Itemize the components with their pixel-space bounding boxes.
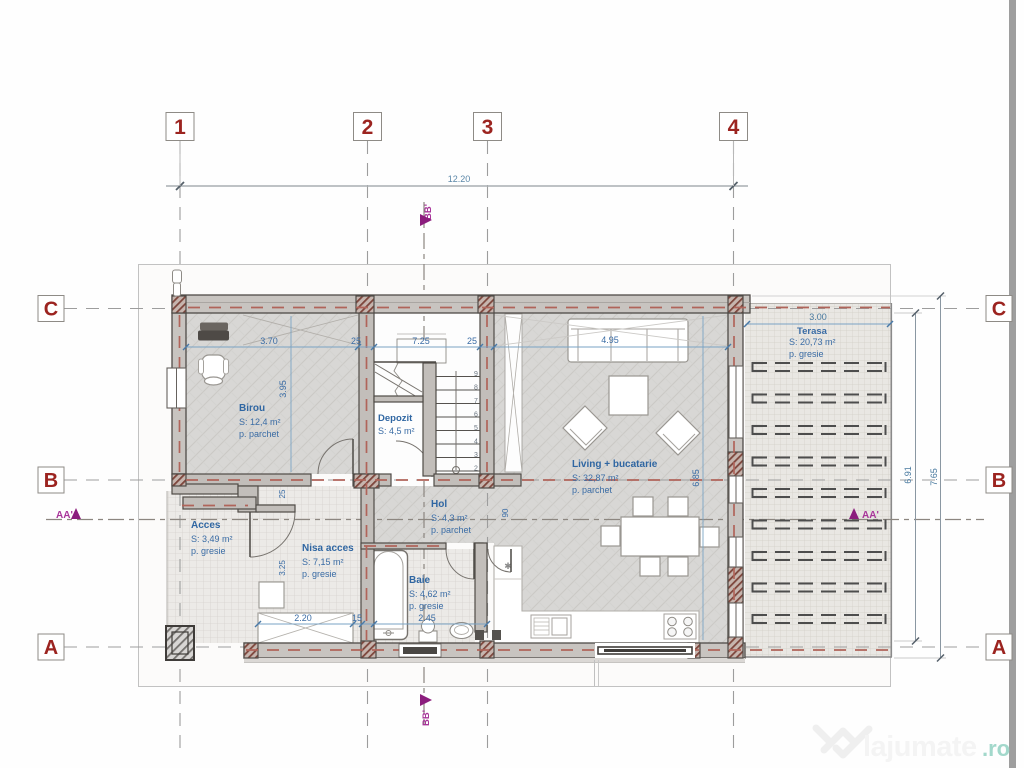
svg-text:Living + bucatarie: Living + bucatarie — [572, 459, 658, 470]
svg-text:4: 4 — [474, 439, 478, 446]
svg-text:S: 4,62 m²: S: 4,62 m² — [409, 589, 451, 599]
svg-text:p. parchet: p. parchet — [239, 429, 280, 439]
svg-text:Hol: Hol — [431, 499, 447, 510]
svg-text:Acces: Acces — [191, 520, 221, 531]
svg-text:6.91: 6.91 — [903, 466, 913, 484]
svg-text:p. parchet: p. parchet — [431, 525, 472, 535]
svg-text:2.20: 2.20 — [294, 613, 312, 623]
svg-text:3: 3 — [474, 452, 478, 459]
svg-text:S: 32,87 m²: S: 32,87 m² — [572, 473, 619, 483]
svg-text:2.45: 2.45 — [418, 613, 436, 623]
svg-text:7.25: 7.25 — [412, 336, 430, 346]
svg-text:Terasa: Terasa — [797, 326, 828, 337]
svg-text:Baie: Baie — [409, 575, 431, 586]
svg-text:A: A — [44, 637, 58, 659]
svg-text:3.25: 3.25 — [278, 560, 287, 576]
svg-text:3.00: 3.00 — [809, 312, 827, 322]
svg-text:AA': AA' — [862, 510, 879, 521]
svg-text:Nisa acces: Nisa acces — [302, 543, 354, 554]
svg-text:5: 5 — [474, 425, 478, 432]
svg-text:C: C — [44, 299, 58, 321]
svg-text:9: 9 — [474, 371, 478, 378]
svg-text:lajumate: lajumate — [863, 731, 977, 763]
svg-text:25: 25 — [351, 336, 361, 346]
svg-text:3: 3 — [482, 116, 494, 139]
svg-text:A: A — [992, 637, 1006, 659]
svg-text:AA': AA' — [56, 510, 73, 521]
svg-text:Depozit: Depozit — [378, 413, 413, 424]
svg-text:12.20: 12.20 — [448, 174, 471, 184]
svg-text:6: 6 — [474, 412, 478, 419]
svg-text:7: 7 — [474, 398, 478, 405]
svg-text:15: 15 — [352, 613, 362, 623]
svg-text:2: 2 — [362, 116, 374, 139]
svg-text:p. gresie: p. gresie — [191, 546, 226, 556]
svg-text:p. gresie: p. gresie — [302, 569, 337, 579]
svg-text:B: B — [44, 470, 58, 492]
svg-text:3.95: 3.95 — [278, 380, 288, 398]
svg-text:.ro: .ro — [982, 736, 1010, 761]
svg-text:S: 3,49 m²: S: 3,49 m² — [191, 534, 233, 544]
svg-text:7.65: 7.65 — [929, 468, 939, 486]
svg-text:BB': BB' — [421, 710, 432, 726]
svg-text:25: 25 — [278, 489, 287, 498]
svg-text:S: 7,15 m²: S: 7,15 m² — [302, 557, 344, 567]
svg-text:p. parchet: p. parchet — [572, 485, 613, 495]
svg-text:p. gresie: p. gresie — [409, 601, 444, 611]
svg-text:p. gresie: p. gresie — [789, 349, 824, 359]
svg-text:S: 4,5 m²: S: 4,5 m² — [378, 426, 415, 436]
svg-text:25: 25 — [467, 336, 477, 346]
svg-text:8: 8 — [474, 385, 478, 392]
svg-text:1: 1 — [174, 116, 186, 139]
svg-text:Birou: Birou — [239, 403, 265, 414]
svg-text:S: 4,3 m²: S: 4,3 m² — [431, 513, 468, 523]
svg-text:C: C — [992, 299, 1006, 321]
svg-text:6.85: 6.85 — [691, 469, 701, 487]
svg-text:4.95: 4.95 — [601, 335, 619, 345]
svg-text:4: 4 — [728, 116, 740, 139]
svg-text:S: 20,73 m²: S: 20,73 m² — [789, 337, 836, 347]
svg-text:3.70: 3.70 — [260, 336, 278, 346]
svg-text:90: 90 — [501, 508, 510, 517]
svg-text:S: 12,4 m²: S: 12,4 m² — [239, 417, 281, 427]
svg-text:2: 2 — [474, 466, 478, 473]
svg-text:B: B — [992, 470, 1006, 492]
